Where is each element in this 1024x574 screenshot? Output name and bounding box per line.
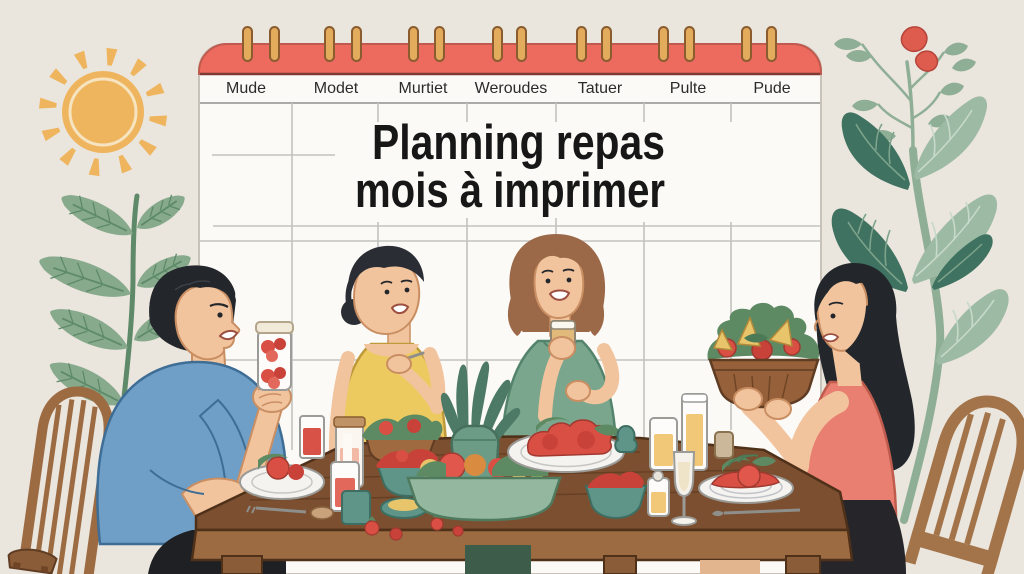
svg-text:Planning repas: Planning repas [372,116,665,170]
svg-text:Mude: Mude [226,80,266,97]
svg-text:Pude: Pude [753,80,790,97]
svg-text:Tatuer: Tatuer [578,80,623,97]
svg-text:Murtiet: Murtiet [399,80,448,97]
svg-text:Modet: Modet [314,80,359,97]
svg-text:Weroudes: Weroudes [475,80,548,97]
svg-text:mois à imprimer: mois à imprimer [355,164,665,218]
svg-text:Pulte: Pulte [670,80,707,97]
